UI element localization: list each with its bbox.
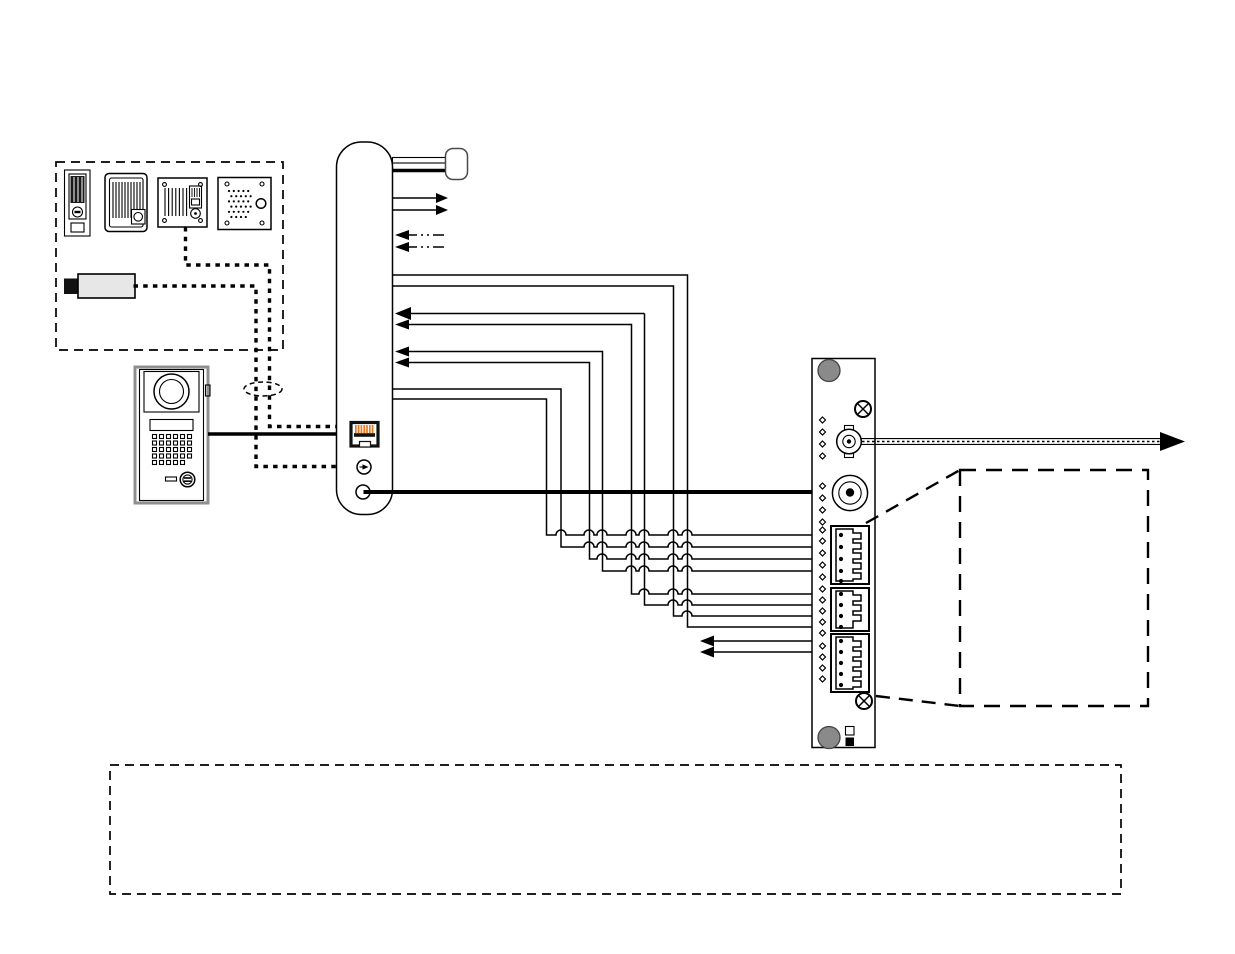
station-wires	[393, 275, 842, 632]
rj45-jack-icon	[351, 423, 378, 448]
mounting-panel	[812, 359, 1185, 749]
mounting-hole-top	[818, 360, 840, 382]
diagram-page	[0, 0, 1235, 954]
signal-out-arrows	[393, 193, 448, 215]
indicator-square-open	[846, 727, 855, 736]
plug-icon	[446, 149, 468, 180]
cable-bundle-ellipse	[244, 382, 282, 396]
mounting-hole-bottom	[818, 727, 840, 749]
compact-station-icon	[65, 170, 91, 236]
terminal-block-1	[831, 526, 869, 584]
wiring-diagram	[0, 0, 1235, 954]
speaker-perforation	[228, 190, 252, 218]
video-door-station-icon	[135, 367, 210, 503]
callout-leader-top	[866, 470, 960, 523]
flush-station-icon	[158, 178, 207, 227]
audio-station-icon	[105, 174, 147, 232]
speaker-station-icon	[218, 178, 271, 230]
terminal-block-3	[831, 634, 869, 692]
notes-box	[110, 765, 1121, 894]
terminal-circle-option	[357, 460, 371, 474]
indicator-square-solid	[846, 738, 855, 747]
option-wire-to-rj45	[186, 227, 351, 427]
accessory-options-box	[56, 162, 283, 350]
detail-callout	[866, 470, 1148, 706]
master-unit-side-profile	[337, 142, 851, 515]
callout-leader-bottom	[876, 696, 960, 706]
detail-callout-box	[960, 470, 1148, 706]
handset-cord-plug	[393, 149, 468, 180]
line-interface-module-icon	[64, 274, 135, 298]
signal-in-dashdot-arrows	[395, 230, 446, 252]
master-unit-outline	[337, 142, 393, 515]
terminal-block-2	[831, 588, 869, 631]
video-out-cable	[862, 432, 1186, 451]
